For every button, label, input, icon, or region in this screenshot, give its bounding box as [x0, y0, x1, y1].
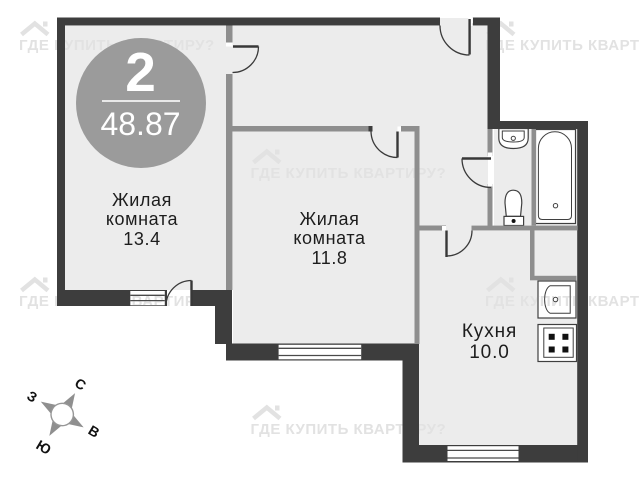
- svg-text:З: З: [24, 387, 40, 405]
- svg-text:Ю: Ю: [33, 437, 54, 458]
- svg-text:С: С: [72, 375, 89, 394]
- svg-text:В: В: [86, 422, 103, 441]
